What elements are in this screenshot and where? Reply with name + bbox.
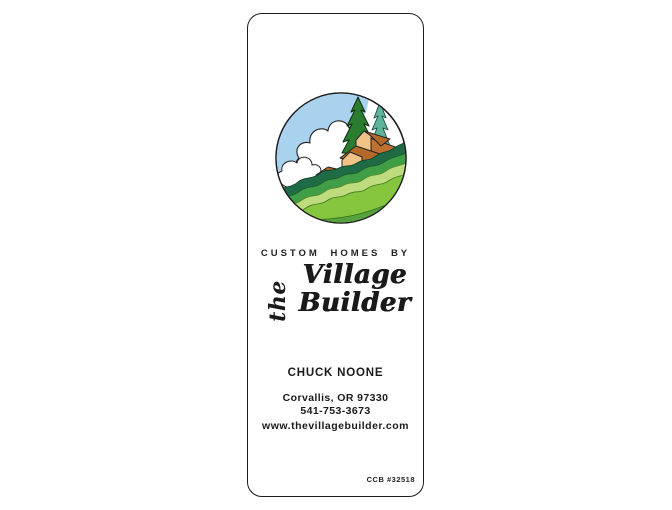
contact-phone: 541-753-3673: [248, 405, 423, 417]
contact-address: Corvallis, OR 97330: [248, 392, 423, 404]
brand-the: the: [266, 273, 290, 329]
brand-lines: Village Builder: [292, 261, 418, 317]
contact-website: www.thevillagebuilder.com: [248, 420, 423, 432]
logo-illustration-svg: [270, 90, 410, 230]
contact-name: CHUCK NOONE: [248, 367, 423, 379]
brand-wordmark: the Village Builder: [258, 261, 418, 341]
brand-line1: Village: [292, 261, 418, 289]
village-builder-logo: [270, 90, 410, 230]
license-number: CCB #32518: [367, 475, 415, 484]
business-card: CUSTOM HOMES BY the Village Builder CHUC…: [247, 13, 424, 497]
brand-line2: Builder: [292, 289, 418, 317]
bookmark-scan: CUSTOM HOMES BY the Village Builder CHUC…: [0, 0, 672, 510]
tagline: CUSTOM HOMES BY: [248, 248, 423, 259]
